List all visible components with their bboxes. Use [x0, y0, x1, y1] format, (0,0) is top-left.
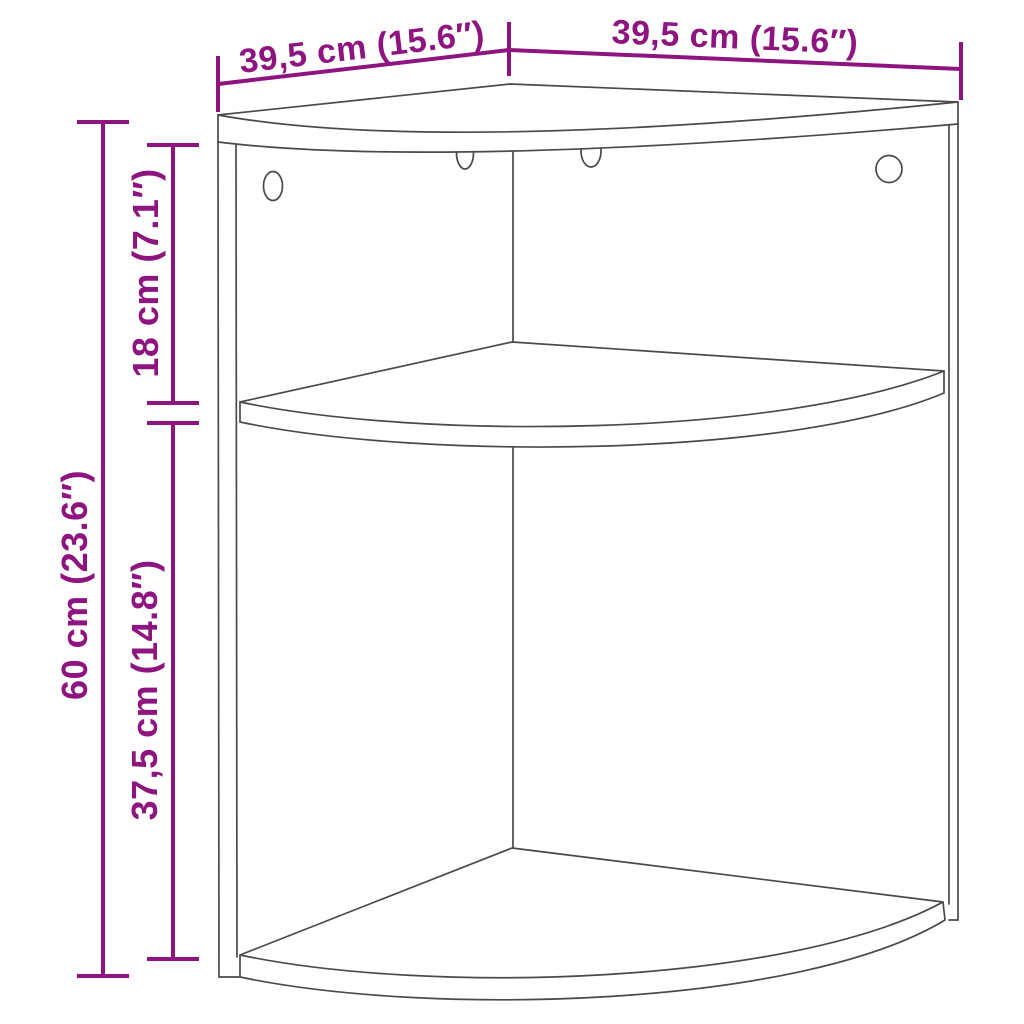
bottom-shelf — [240, 848, 945, 1000]
product-dimension-diagram: 39,5 cm (15.6″) 39,5 cm (15.6″) 60 cm (2… — [0, 0, 1024, 1024]
right-side-panel-edge — [949, 124, 958, 920]
furniture-line-drawing — [0, 0, 1024, 1024]
screw-hole-left — [264, 172, 283, 201]
left-side-panel-edge — [218, 142, 241, 977]
dimension-annotations — [77, 22, 961, 976]
top-panel — [218, 84, 958, 152]
dim-label-overall-height: 60 cm (23.6″) — [54, 470, 96, 700]
screw-hole-right — [876, 156, 902, 183]
dim-label-lower-compartment-height: 37,5 cm (14.8″) — [124, 560, 166, 821]
dim-label-upper-compartment-height: 18 cm (7.1″) — [125, 168, 167, 377]
middle-shelf — [240, 342, 944, 447]
